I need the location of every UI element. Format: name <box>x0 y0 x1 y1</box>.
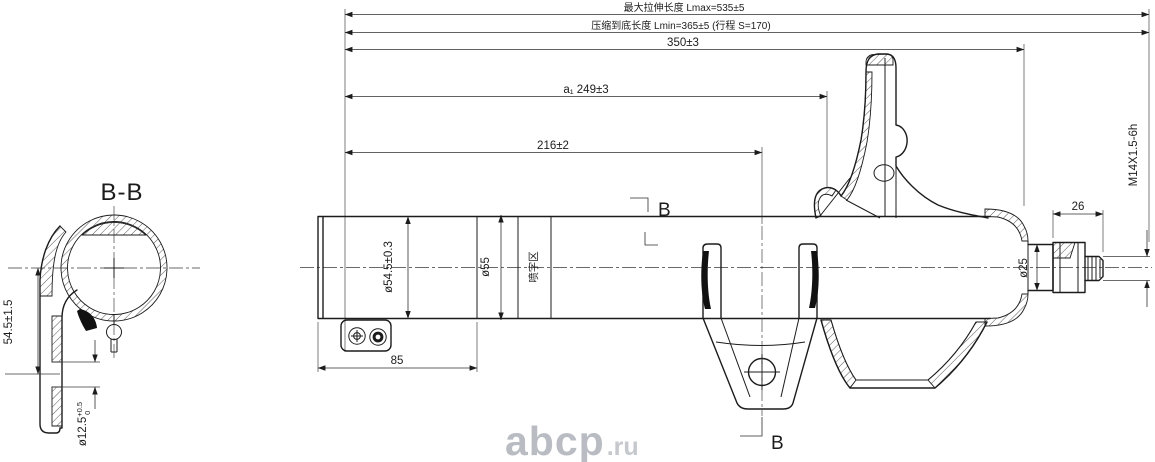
band-marking-label: 喷字区 <box>527 251 540 283</box>
dim-label-thread: M14X1.5-6h <box>1128 124 1140 187</box>
dim-label-350: 350±3 <box>667 37 699 49</box>
dim-label-545: 54.5±1.5 <box>3 300 15 345</box>
tube-rim-top <box>985 209 1028 241</box>
tube-rim-bottom <box>985 294 1028 326</box>
spring-seat-upper <box>814 54 988 218</box>
technical-drawing-page: 最大拉伸长度 Lmax=535±5 压缩到底长度 Lmin=365±5 (行程 … <box>0 0 1155 462</box>
dim-label-lmin: 压缩到底长度 Lmin=365±5 (行程 S=170) <box>591 19 770 32</box>
bracket-arm-hatch-mid <box>52 316 62 362</box>
bolt-bracket <box>341 320 391 351</box>
dim-label-dia545: ø54.5±0.3 <box>383 241 395 293</box>
dim-label-lmax: 最大拉伸长度 Lmax=535±5 <box>624 1 745 14</box>
dim-label-249: a₁ 249±3 <box>563 84 608 96</box>
clevis-bracket <box>701 244 818 409</box>
dim-label-hole: ø12.5+0.50 <box>75 402 92 446</box>
center-cross <box>104 258 124 278</box>
section-view-bb: B-B 54.5±1.5 ø12.5+0.50 <box>3 179 200 446</box>
strut-drawing-svg: 最大拉伸长度 Lmax=535±5 压缩到底长度 Lmin=365±5 (行程 … <box>0 0 1155 462</box>
dim-label-216: 216±2 <box>537 140 569 152</box>
section-marker-lower: B <box>771 433 784 454</box>
hole-value: ø12.5 <box>77 417 89 446</box>
watermark-logo: abcp.ru <box>505 418 639 462</box>
section-corner-lower <box>740 417 762 436</box>
spring-seat-lower <box>821 320 987 388</box>
section-corner-upper-2 <box>645 232 658 245</box>
dim-label-dia55: ø55 <box>480 257 492 277</box>
spring-seat-hole <box>874 165 894 181</box>
hole-tol-sub: 0 <box>83 411 92 415</box>
watermark-tld: .ru <box>607 433 639 461</box>
dim-label-85: 85 <box>391 355 404 367</box>
section-corner-upper-1 <box>630 198 648 212</box>
section-view-title: B-B <box>100 179 143 206</box>
watermark-name: abcp <box>505 418 605 462</box>
bracket-arm-hatch-lower <box>52 387 62 426</box>
dim-label-26: 26 <box>1072 201 1085 213</box>
rod-nut-section <box>1053 243 1075 259</box>
dim-label-dia25: ø25 <box>1018 258 1030 278</box>
section-marker-upper: B <box>658 200 671 221</box>
top-dimension-ladder: 最大拉伸长度 Lmax=535±5 压缩到底长度 Lmin=365±5 (行程 … <box>345 1 1149 352</box>
bolt-hole-cross <box>351 330 363 342</box>
